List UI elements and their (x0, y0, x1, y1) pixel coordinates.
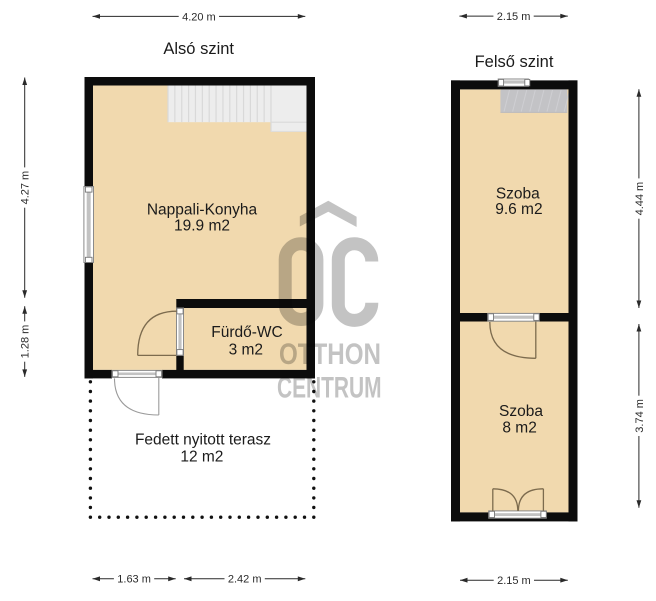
svg-text:3.74 m: 3.74 m (634, 399, 646, 433)
svg-text:8 m2: 8 m2 (502, 419, 536, 436)
svg-text:1.63 m: 1.63 m (117, 574, 151, 586)
svg-text:4.27 m: 4.27 m (20, 171, 32, 205)
svg-text:Fürdő-WC: Fürdő-WC (211, 324, 282, 341)
svg-text:19.9 m2: 19.9 m2 (174, 218, 230, 235)
svg-text:2.42 m: 2.42 m (228, 574, 262, 586)
svg-text:3 m2: 3 m2 (229, 342, 263, 359)
svg-text:Alsó szint: Alsó szint (163, 40, 234, 58)
svg-text:1.28 m: 1.28 m (20, 325, 32, 359)
svg-text:4.20 m: 4.20 m (182, 11, 216, 23)
svg-text:2.15 m: 2.15 m (497, 575, 531, 587)
svg-text:4.44 m: 4.44 m (634, 182, 646, 216)
svg-text:CENTRUM: CENTRUM (277, 372, 382, 405)
svg-text:OTTHON: OTTHON (279, 338, 381, 371)
svg-text:Fedett nyitott terasz: Fedett nyitott terasz (135, 432, 271, 449)
svg-text:Nappali-Konyha: Nappali-Konyha (147, 202, 258, 219)
svg-text:2.15 m: 2.15 m (497, 11, 531, 23)
svg-text:12 m2: 12 m2 (180, 449, 223, 466)
svg-text:Felső szint: Felső szint (475, 53, 554, 71)
svg-text:Szoba: Szoba (499, 403, 543, 420)
svg-text:9.6 m2: 9.6 m2 (495, 201, 542, 218)
